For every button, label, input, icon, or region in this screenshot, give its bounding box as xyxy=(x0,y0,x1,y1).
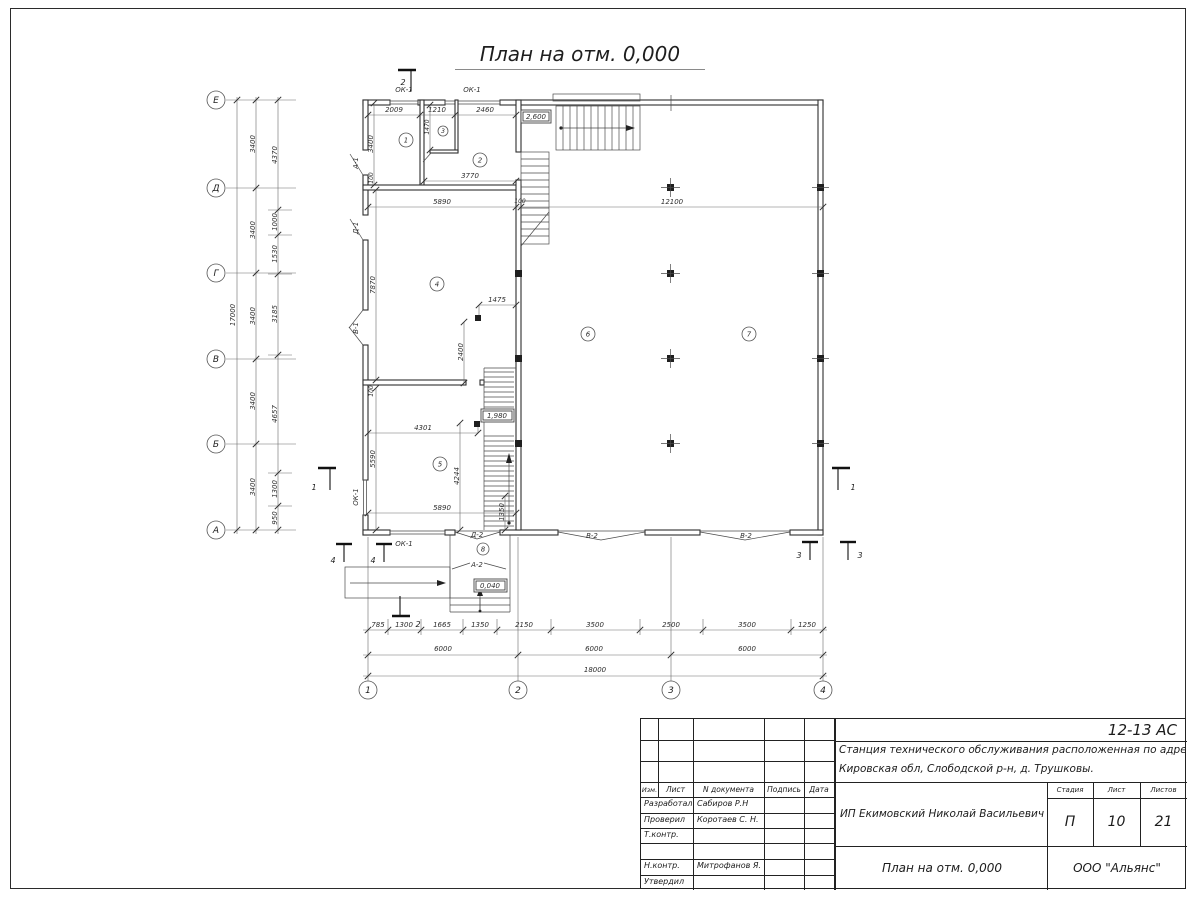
tb-col-ndoc: N документа xyxy=(693,782,764,797)
svg-text:1: 1 xyxy=(850,483,855,492)
svg-text:6000: 6000 xyxy=(585,645,603,653)
tb-role: Разработал xyxy=(644,799,692,808)
svg-text:2: 2 xyxy=(400,78,405,87)
svg-text:3: 3 xyxy=(441,128,445,135)
svg-text:1475: 1475 xyxy=(488,296,506,304)
svg-text:3400: 3400 xyxy=(249,392,257,410)
tb-col-izm: Изм. xyxy=(641,782,658,797)
grid-axes-bottom: 1 2 3 4 xyxy=(359,537,832,699)
svg-text:3400: 3400 xyxy=(249,307,257,325)
svg-text:Е: Е xyxy=(213,96,219,106)
tb-role: Проверил xyxy=(644,815,692,824)
svg-text:4244: 4244 xyxy=(453,467,461,485)
svg-text:2,600: 2,600 xyxy=(526,113,547,121)
walls xyxy=(349,94,823,540)
tb-divider xyxy=(834,719,836,890)
svg-text:Д: Д xyxy=(211,184,219,194)
svg-text:3400: 3400 xyxy=(367,135,375,153)
svg-text:1300: 1300 xyxy=(271,480,279,498)
svg-text:3770: 3770 xyxy=(461,172,479,180)
tb-role: Н.контр. xyxy=(644,861,692,870)
svg-text:А-2: А-2 xyxy=(470,561,483,569)
tb-organization: ООО "Альянс" xyxy=(1047,846,1187,890)
svg-text:1350: 1350 xyxy=(471,621,489,629)
tb-name: Сабиров Р.Н xyxy=(697,799,763,808)
svg-text:3400: 3400 xyxy=(249,478,257,496)
tb-sheets-value: 21 xyxy=(1140,798,1187,846)
tb-role: Утвердил xyxy=(644,877,692,886)
svg-text:ОК-1: ОК-1 xyxy=(395,86,412,94)
tb-client: ИП Екимовский Николай Васильевич xyxy=(837,782,1047,846)
svg-text:100: 100 xyxy=(368,172,375,184)
svg-text:4: 4 xyxy=(370,556,375,565)
svg-text:4301: 4301 xyxy=(414,424,432,432)
svg-text:2009: 2009 xyxy=(385,106,403,114)
svg-text:18000: 18000 xyxy=(584,666,607,674)
tb-sheet-value: 10 xyxy=(1093,798,1140,846)
svg-text:6: 6 xyxy=(586,331,591,339)
drawing-sheet: План на отм. 0,000 Е Д Г В Б А xyxy=(0,0,1200,900)
svg-text:5: 5 xyxy=(438,461,443,469)
svg-text:3185: 3185 xyxy=(271,305,279,323)
svg-text:7870: 7870 xyxy=(369,276,377,294)
tb-role: Т.контр. xyxy=(644,830,692,839)
svg-text:1210: 1210 xyxy=(428,106,446,114)
svg-text:3500: 3500 xyxy=(586,621,604,629)
tb-stage-value: П xyxy=(1047,798,1093,846)
svg-text:8: 8 xyxy=(481,546,486,554)
svg-text:Б: Б xyxy=(213,440,219,450)
svg-text:3: 3 xyxy=(796,551,801,560)
svg-text:1665: 1665 xyxy=(433,621,451,629)
bottom-dimensions: 785 1300 1665 1350 2150 3500 2500 3500 1… xyxy=(363,619,827,679)
svg-text:3500: 3500 xyxy=(738,621,756,629)
tb-col-sign: Подпись xyxy=(764,782,804,797)
tb-col-list: Лист xyxy=(658,782,693,797)
elevation-marks: 2,600 1,980 0,040 xyxy=(474,110,551,592)
stair-upper xyxy=(521,106,640,246)
svg-text:Г: Г xyxy=(213,269,219,279)
svg-text:1250: 1250 xyxy=(798,621,816,629)
svg-text:5890: 5890 xyxy=(433,504,451,512)
svg-text:6000: 6000 xyxy=(738,645,756,653)
section-marks: 2 2 1 1 3 3 4 4 xyxy=(311,70,862,629)
svg-text:ОК-1: ОК-1 xyxy=(352,488,360,505)
svg-text:3400: 3400 xyxy=(249,135,257,153)
svg-text:17000: 17000 xyxy=(229,303,237,326)
svg-text:3: 3 xyxy=(857,551,862,560)
tb-object-line2: Кировская обл, Слободской р-н, д. Трушко… xyxy=(839,763,1185,775)
svg-text:2: 2 xyxy=(415,620,420,629)
svg-text:А: А xyxy=(212,526,219,536)
svg-text:12100: 12100 xyxy=(661,198,684,206)
svg-text:2: 2 xyxy=(515,686,521,696)
ramp xyxy=(345,567,450,598)
svg-text:6000: 6000 xyxy=(434,645,452,653)
svg-text:3400: 3400 xyxy=(249,221,257,239)
svg-text:2150: 2150 xyxy=(515,621,533,629)
svg-text:1: 1 xyxy=(365,686,371,696)
svg-text:В-2: В-2 xyxy=(740,532,752,540)
svg-text:785: 785 xyxy=(371,621,385,629)
svg-text:4: 4 xyxy=(435,281,439,289)
svg-text:1350: 1350 xyxy=(498,503,506,521)
svg-text:7: 7 xyxy=(747,331,752,339)
tb-col-date: Дата xyxy=(804,782,834,797)
svg-text:В-1: В-1 xyxy=(352,322,360,334)
svg-text:5590: 5590 xyxy=(369,450,377,468)
opening-labels: ОК-1 ОК-1 А-1 Д-1 В-1 ОК-1 ОК-1 Д-2 А-2 … xyxy=(352,86,752,569)
svg-text:5890: 5890 xyxy=(433,198,451,206)
tb-name: Коротаев С. Н. xyxy=(697,815,763,824)
svg-text:1000: 1000 xyxy=(271,213,279,231)
svg-text:950: 950 xyxy=(271,511,279,525)
svg-text:100: 100 xyxy=(368,385,375,397)
svg-text:1470: 1470 xyxy=(424,119,431,134)
svg-text:Д-2: Д-2 xyxy=(470,531,484,539)
title-block: Изм. Лист N документа Подпись Дата Разра… xyxy=(640,718,1186,889)
svg-text:4: 4 xyxy=(330,556,335,565)
tb-document-code: 12-13 АС xyxy=(841,720,1177,741)
columns xyxy=(515,95,829,453)
svg-text:2500: 2500 xyxy=(662,621,680,629)
tb-drawing-title: План на отм. 0,000 xyxy=(837,846,1047,890)
svg-text:1,980: 1,980 xyxy=(487,412,508,420)
svg-text:4370: 4370 xyxy=(271,146,279,164)
svg-text:Д-1: Д-1 xyxy=(352,222,360,235)
svg-text:А-1: А-1 xyxy=(352,157,360,170)
svg-text:2460: 2460 xyxy=(476,106,494,114)
svg-text:4: 4 xyxy=(820,686,826,696)
svg-text:1530: 1530 xyxy=(271,245,279,263)
svg-text:100: 100 xyxy=(514,198,526,205)
svg-text:1300: 1300 xyxy=(395,621,413,629)
svg-text:В: В xyxy=(213,355,219,365)
svg-text:ОК-1: ОК-1 xyxy=(395,540,412,548)
svg-text:ОК-1: ОК-1 xyxy=(463,86,480,94)
svg-text:3: 3 xyxy=(668,686,674,696)
svg-text:1: 1 xyxy=(311,483,316,492)
tb-name: Митрофанов Я. А. xyxy=(697,861,763,870)
svg-text:2: 2 xyxy=(478,157,483,165)
tb-stage-label: Стадия xyxy=(1047,782,1093,798)
tb-object-line1: Станция технического обслуживания распол… xyxy=(839,744,1185,756)
svg-text:1: 1 xyxy=(404,137,408,145)
tb-sheet-label: Лист xyxy=(1093,782,1140,798)
svg-text:2400: 2400 xyxy=(457,343,465,361)
tb-sheets-label: Листов xyxy=(1140,782,1187,798)
left-dimensions: 17000 3400 3400 3400 3400 3400 4370 1000… xyxy=(229,97,292,534)
svg-text:4657: 4657 xyxy=(271,405,279,423)
svg-text:0,040: 0,040 xyxy=(480,582,501,590)
svg-text:В-2: В-2 xyxy=(586,532,598,540)
